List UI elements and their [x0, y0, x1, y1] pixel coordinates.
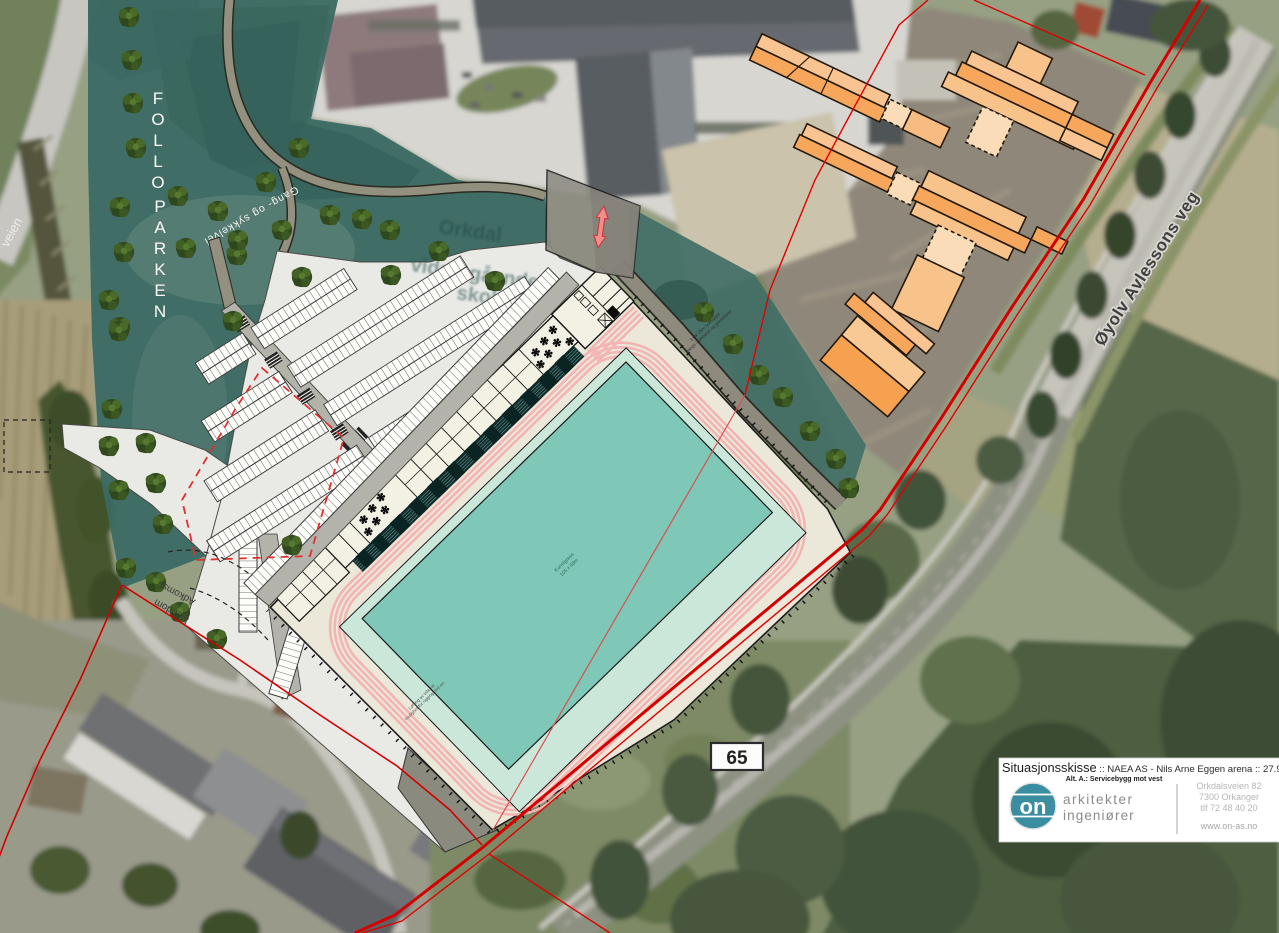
- svg-text:Alt. A.: Servicebygg mot vest: Alt. A.: Servicebygg mot vest: [1066, 776, 1163, 783]
- svg-text:R: R: [154, 239, 166, 258]
- svg-text:L: L: [153, 152, 162, 171]
- svg-text:arkitekter: arkitekter: [1063, 792, 1134, 807]
- svg-text:www.on-as.no: www.on-as.no: [1200, 821, 1258, 831]
- svg-text:N: N: [154, 302, 166, 321]
- svg-text:F: F: [153, 89, 163, 108]
- svg-text:Orkdalsveien 82: Orkdalsveien 82: [1196, 781, 1261, 791]
- svg-text:P: P: [154, 197, 165, 216]
- svg-text:O: O: [151, 173, 164, 192]
- svg-text:ingeniører: ingeniører: [1063, 808, 1135, 823]
- svg-text:65: 65: [726, 748, 748, 769]
- svg-text:O: O: [151, 110, 164, 129]
- svg-text:tlf 72 48 40 20: tlf 72 48 40 20: [1200, 803, 1257, 813]
- svg-text:A: A: [154, 218, 166, 237]
- svg-text:E: E: [154, 281, 165, 300]
- svg-text:7300 Orkanger: 7300 Orkanger: [1199, 792, 1259, 802]
- svg-text:K: K: [154, 260, 166, 279]
- svg-text:L: L: [153, 131, 162, 150]
- svg-text:on: on: [1020, 794, 1047, 819]
